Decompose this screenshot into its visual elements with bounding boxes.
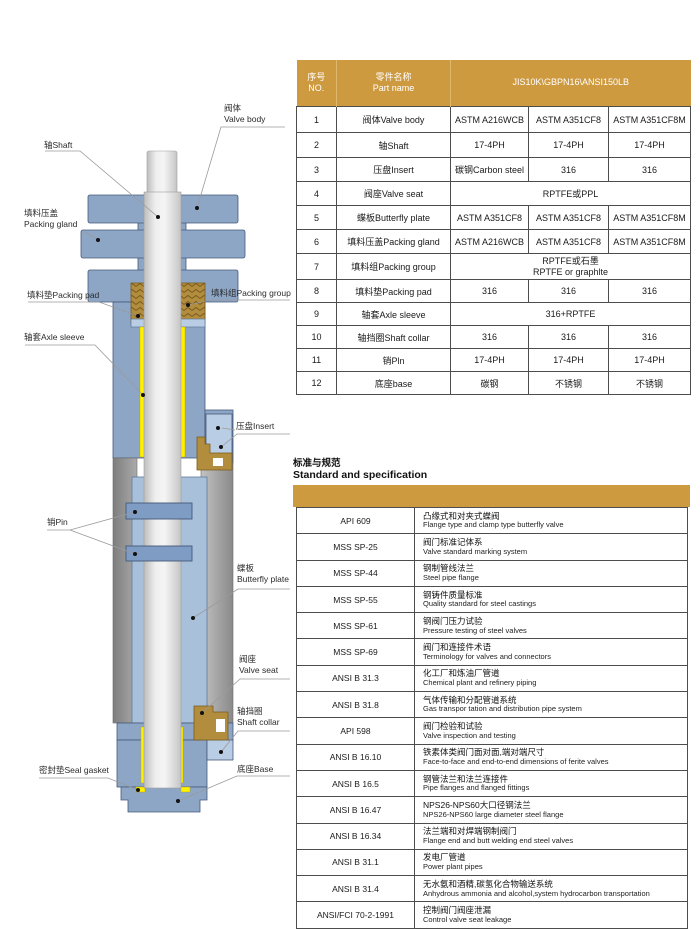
valve-body-label: 阀体 Valve body <box>224 103 265 125</box>
standard-description-en: Steel pipe flange <box>423 574 687 582</box>
standards-row: ANSI B 31.1 发电厂管道 Power plant pipes <box>297 849 688 875</box>
standard-description: NPS26-NPS60大口径钢法兰 NPS26-NPS60 large diam… <box>415 797 688 823</box>
cell-material: ASTM A351CF8M <box>609 230 691 254</box>
cell-material: 316 <box>529 326 609 349</box>
cell-material: 碳钢 <box>451 372 529 395</box>
standard-description: 化工厂和炼油厂管道 Chemical plant and refinery pi… <box>415 665 688 691</box>
standards-row: MSS SP-55 钢铸件质量标准 Quality standard for s… <box>297 586 688 612</box>
cell-material: 17-4PH <box>529 349 609 372</box>
standard-description-en: Chemical plant and refinery piping <box>423 679 687 687</box>
cell-no: 9 <box>297 303 337 326</box>
cell-part-name: 轴挡圈Shaft collar <box>337 326 451 349</box>
standard-code: ANSI/FCI 70-2-1991 <box>297 902 415 928</box>
cell-material: 316 <box>609 280 691 303</box>
packing-gland-label: 填料压盖 Packing gland <box>24 208 77 230</box>
butterfly-plate-label-zh: 蝶板 <box>237 563 254 573</box>
packing-pad-label: 填料垫Packing pad <box>27 290 99 301</box>
col-header-no-zh: 序号 <box>298 72 336 83</box>
standard-code: API 598 <box>297 718 415 744</box>
cell-material: 17-4PH <box>609 133 691 158</box>
standard-description: 钢制管线法兰 Steel pipe flange <box>415 560 688 586</box>
page: { "colors": { "gold_header": "#CE9A40", … <box>0 0 700 897</box>
cell-material-span: RPTFE或PPL <box>451 182 691 206</box>
cell-part-name: 填料组Packing group <box>337 254 451 280</box>
shaft-collar-label-en: Shaft collar <box>237 717 280 728</box>
standard-description: 无水氨和酒精,碳氢化合物输送系统 Anhydrous ammonia and a… <box>415 876 688 902</box>
standards-gold-bar <box>293 485 690 507</box>
col-header-part-name: 零件名称 Part name <box>337 60 451 107</box>
standard-code: ANSI B 16.10 <box>297 744 415 770</box>
butterfly-plate-label-en: Butterfly plate <box>237 574 289 585</box>
cell-no: 11 <box>297 349 337 372</box>
cell-no: 1 <box>297 107 337 133</box>
standard-description: 发电厂管道 Power plant pipes <box>415 849 688 875</box>
standard-description: 气体传输和分配管道系统 Gas transpor tation and dist… <box>415 692 688 718</box>
standard-code: API 609 <box>297 507 415 533</box>
standard-description-en: Quality standard for steel castings <box>423 600 687 608</box>
cell-material: ASTM A351CF8M <box>609 107 691 133</box>
cell-material: 17-4PH <box>529 133 609 158</box>
table-row: 7 填料组Packing group RPTFE或石墨 RPTFE or gra… <box>297 254 691 280</box>
shaft-shape <box>144 151 181 788</box>
cell-part-name: 底座base <box>337 372 451 395</box>
packing-gland-label-zh: 填料压盖 <box>24 208 58 218</box>
cell-material: 316 <box>451 280 529 303</box>
standard-description-en: Pressure testing of steel valves <box>423 627 687 635</box>
table-row: 2 轴Shaft 17-4PH 17-4PH 17-4PH <box>297 133 691 158</box>
cell-part-name: 填料压盖Packing gland <box>337 230 451 254</box>
table-row: 4 阀座Valve seat RPTFE或PPL <box>297 182 691 206</box>
standard-code: MSS SP-61 <box>297 613 415 639</box>
cell-part-name: 阀体Valve body <box>337 107 451 133</box>
col-header-materials: JIS10K\GBPN16\ANSI150LB <box>451 60 691 107</box>
standard-code: ANSI B 16.47 <box>297 797 415 823</box>
cell-material: 316 <box>451 326 529 349</box>
valve-body-label-en: Valve body <box>224 114 265 125</box>
standard-code: ANSI B 16.34 <box>297 823 415 849</box>
standard-code: MSS SP-25 <box>297 534 415 560</box>
shaft-collar-label: 轴挡圈 Shaft collar <box>237 706 280 728</box>
standard-code: MSS SP-69 <box>297 639 415 665</box>
cell-no: 4 <box>297 182 337 206</box>
cell-part-name: 销Pln <box>337 349 451 372</box>
standard-description-en: Flange end and butt welding end steel va… <box>423 837 687 845</box>
cell-material: 316 <box>529 280 609 303</box>
standard-code: ANSI B 16.5 <box>297 770 415 796</box>
cell-material-line1: RPTFE或石墨 <box>452 256 689 266</box>
cell-material: ASTM A351CF8 <box>451 206 529 230</box>
standard-description: 钢管法兰和法兰连接件 Pipe flanges and flanged fitt… <box>415 770 688 796</box>
packing-group-label: 填料组Packing group <box>211 288 291 299</box>
table-row: 5 蝶板Butterfly plate ASTM A351CF8 ASTM A3… <box>297 206 691 230</box>
standard-description: 阀门检验和试验 Valve inspection and testing <box>415 718 688 744</box>
valve-seat-label: 阀座 Valve seat <box>239 654 278 676</box>
standards-row: MSS SP-44 钢制管线法兰 Steel pipe flange <box>297 560 688 586</box>
table-row: 3 压盘Insert 碳钢Carbon steel 316 316 <box>297 158 691 182</box>
standards-row: ANSI B 31.3 化工厂和炼油厂管道 Chemical plant and… <box>297 665 688 691</box>
cell-no: 6 <box>297 230 337 254</box>
cell-part-name: 蝶板Butterfly plate <box>337 206 451 230</box>
standards-title-en: Standard and specification <box>293 469 690 482</box>
standard-code: MSS SP-44 <box>297 560 415 586</box>
cell-material: 316 <box>529 158 609 182</box>
packing-gland-label-en: Packing gland <box>24 219 77 230</box>
shaft-label: 轴Shaft <box>44 140 72 151</box>
standards-row: API 609 凸缘式和对夹式蝶阀 Flange type and clamp … <box>297 507 688 533</box>
cell-material: ASTM A351CF8 <box>529 107 609 133</box>
standard-code: ANSI B 31.4 <box>297 876 415 902</box>
cell-material: ASTM A216WCB <box>451 230 529 254</box>
table-row: 8 填料垫Packing pad 316 316 316 <box>297 280 691 303</box>
cell-material: 不锈钢 <box>529 372 609 395</box>
cell-material-line2: RPTFE or graphlte <box>452 267 689 277</box>
pin-label: 销Pin <box>47 517 68 528</box>
cell-material: ASTM A351CF8M <box>609 206 691 230</box>
table-row: 9 轴套Axle sleeve 316+RPTFE <box>297 303 691 326</box>
standards-row: API 598 阀门检验和试验 Valve inspection and tes… <box>297 718 688 744</box>
parts-table-header-row: 序号 NO. 零件名称 Part name JIS10K\GBPN16\ANSI… <box>297 60 691 107</box>
col-header-no-en: NO. <box>298 83 336 94</box>
standard-description: 铁素体类阀门面对面,端对端尺寸 Face-to-face and end-to-… <box>415 744 688 770</box>
standard-code: MSS SP-55 <box>297 586 415 612</box>
col-header-name-zh: 零件名称 <box>338 72 449 83</box>
cell-material: ASTM A351CF8 <box>529 206 609 230</box>
cell-material: 316 <box>609 158 691 182</box>
standard-description-en: Power plant pipes <box>423 863 687 871</box>
cell-no: 5 <box>297 206 337 230</box>
standard-description-en: Control valve seat leakage <box>423 916 687 924</box>
col-header-name-en: Part name <box>338 83 449 94</box>
cell-no: 3 <box>297 158 337 182</box>
cell-part-name: 阀座Valve seat <box>337 182 451 206</box>
standards-row: ANSI B 31.8 气体传输和分配管道系统 Gas transpor tat… <box>297 692 688 718</box>
standards-row: MSS SP-25 阀门标准记体系 Valve standard marking… <box>297 534 688 560</box>
standard-description-en: Valve inspection and testing <box>423 732 687 740</box>
standard-description: 阀门标准记体系 Valve standard marking system <box>415 534 688 560</box>
butterfly-plate-label: 蝶板 Butterfly plate <box>237 563 289 585</box>
parts-table: 序号 NO. 零件名称 Part name JIS10K\GBPN16\ANSI… <box>296 60 691 395</box>
standard-description-en: Terminology for valves and connectors <box>423 653 687 661</box>
cell-part-name: 轴套Axle sleeve <box>337 303 451 326</box>
cell-no: 8 <box>297 280 337 303</box>
standard-description-en: Valve standard marking system <box>423 548 687 556</box>
table-row: 12 底座base 碳钢 不锈钢 不锈钢 <box>297 372 691 395</box>
standard-description-en: NPS26-NPS60 large diameter steel flange <box>423 811 687 819</box>
standards-row: ANSI B 16.10 铁素体类阀门面对面,端对端尺寸 Face-to-fac… <box>297 744 688 770</box>
standard-description-zh: 控制阀门阀座泄漏 <box>423 906 687 916</box>
standard-description-en: Face-to-face and end-to-end dimensions o… <box>423 758 687 766</box>
standards-row: ANSI B 16.34 法兰端和对焊端钢制阀门 Flange end and … <box>297 823 688 849</box>
standards-row: ANSI B 16.5 钢管法兰和法兰连接件 Pipe flanges and … <box>297 770 688 796</box>
standards-row: MSS SP-61 钢阀门压力试验 Pressure testing of st… <box>297 613 688 639</box>
standards-table: API 609 凸缘式和对夹式蝶阀 Flange type and clamp … <box>296 507 688 929</box>
valve-body-label-zh: 阀体 <box>224 103 241 113</box>
standards-row: MSS SP-69 阀门和连接件术语 Terminology for valve… <box>297 639 688 665</box>
cell-material: 不锈钢 <box>609 372 691 395</box>
standard-description-en: Flange type and clamp type butterfly val… <box>423 521 687 529</box>
col-header-no: 序号 NO. <box>297 60 337 107</box>
cell-material: ASTM A216WCB <box>451 107 529 133</box>
cell-material: 碳钢Carbon steel <box>451 158 529 182</box>
standard-description: 凸缘式和对夹式蝶阀 Flange type and clamp type but… <box>415 507 688 533</box>
cell-no: 7 <box>297 254 337 280</box>
standard-description: 法兰端和对焊端钢制阀门 Flange end and butt welding … <box>415 823 688 849</box>
cell-no: 2 <box>297 133 337 158</box>
cell-material: ASTM A351CF8 <box>529 230 609 254</box>
standards-section: 标准与规范 Standard and specification API 609… <box>293 458 690 929</box>
cell-material: 17-4PH <box>451 349 529 372</box>
standard-description: 控制阀门阀座泄漏 Control valve seat leakage <box>415 902 688 928</box>
valve-seat-label-en: Valve seat <box>239 665 278 676</box>
cell-no: 12 <box>297 372 337 395</box>
standard-code: ANSI B 31.1 <box>297 849 415 875</box>
cell-material: 17-4PH <box>451 133 529 158</box>
table-row: 11 销Pln 17-4PH 17-4PH 17-4PH <box>297 349 691 372</box>
standard-code: ANSI B 31.3 <box>297 665 415 691</box>
standard-description: 钢铸件质量标准 Quality standard for steel casti… <box>415 586 688 612</box>
standard-description-en: Gas transpor tation and distribution pip… <box>423 705 687 713</box>
cell-material: 17-4PH <box>609 349 691 372</box>
table-row: 10 轴挡圈Shaft collar 316 316 316 <box>297 326 691 349</box>
standard-description: 阀门和连接件术语 Terminology for valves and conn… <box>415 639 688 665</box>
shaft-collar-label-zh: 轴挡圈 <box>237 706 263 716</box>
standard-description: 钢阀门压力试验 Pressure testing of steel valves <box>415 613 688 639</box>
standards-row: ANSI B 16.47 NPS26-NPS60大口径钢法兰 NPS26-NPS… <box>297 797 688 823</box>
axle-sleeve-label: 轴套Axle sleeve <box>24 332 84 343</box>
standard-description-en: Pipe flanges and flanged fittings <box>423 784 687 792</box>
valve-seat-label-zh: 阀座 <box>239 654 256 664</box>
cell-material-span: 316+RPTFE <box>451 303 691 326</box>
table-row: 6 填料压盖Packing gland ASTM A216WCB ASTM A3… <box>297 230 691 254</box>
seal-gasket-label: 密封垫Seal gasket <box>39 765 109 776</box>
cell-part-name: 填料垫Packing pad <box>337 280 451 303</box>
cell-no: 10 <box>297 326 337 349</box>
cell-material-span: RPTFE或石墨 RPTFE or graphlte <box>451 254 691 280</box>
cell-part-name: 轴Shaft <box>337 133 451 158</box>
cell-material: 316 <box>609 326 691 349</box>
standard-code: ANSI B 31.8 <box>297 692 415 718</box>
standards-title-zh: 标准与规范 <box>293 458 690 469</box>
cell-part-name: 压盘Insert <box>337 158 451 182</box>
standards-row: ANSI B 31.4 无水氨和酒精,碳氢化合物输送系统 Anhydrous a… <box>297 876 688 902</box>
insert-label: 压盘Insert <box>236 421 274 432</box>
table-row: 1 阀体Valve body ASTM A216WCB ASTM A351CF8… <box>297 107 691 133</box>
base-label: 底座Base <box>237 764 273 775</box>
standards-row: ANSI/FCI 70-2-1991 控制阀门阀座泄漏 Control valv… <box>297 902 688 928</box>
